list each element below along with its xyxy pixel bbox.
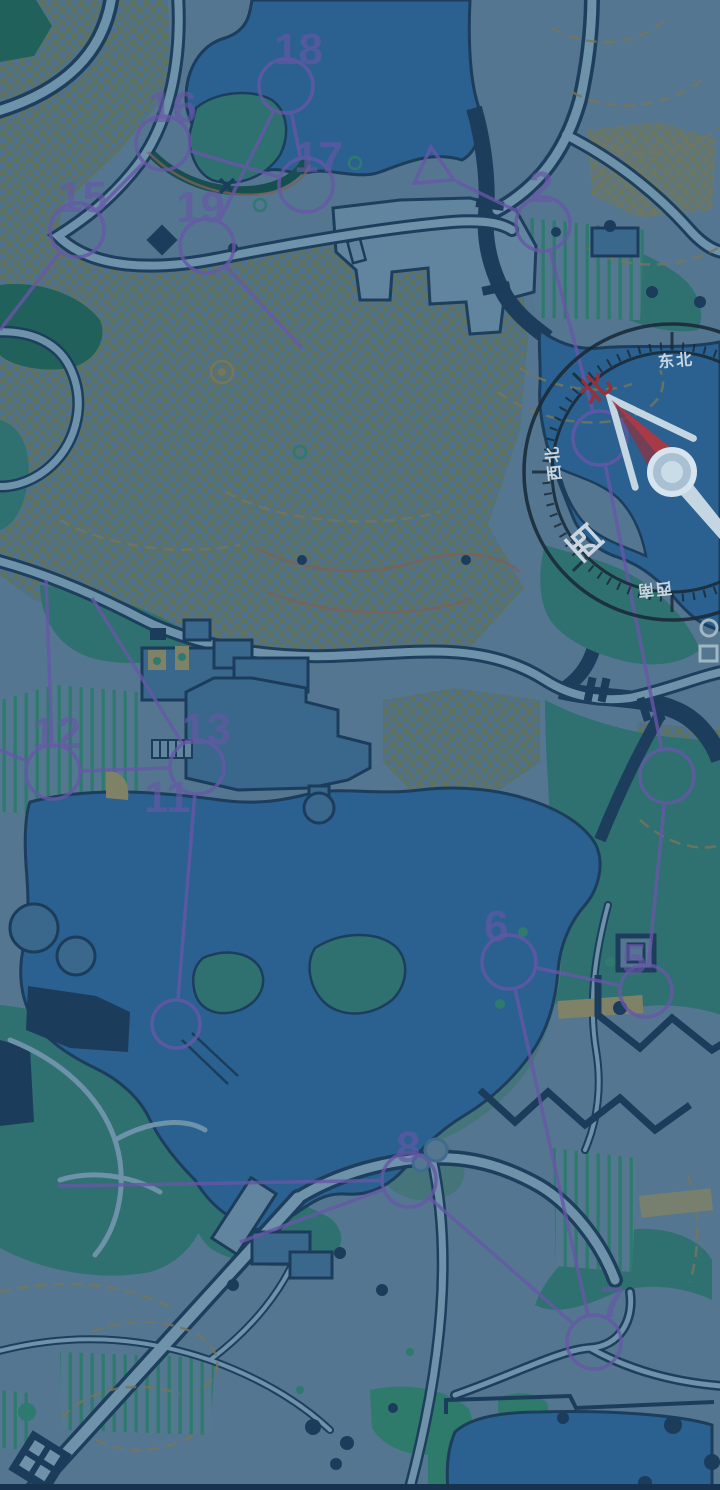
orienteering-map[interactable]: 151617181925678111213 北 东北 西北 西 西南 [0, 0, 720, 1490]
control-number-2: 2 [529, 163, 553, 212]
building [184, 620, 210, 640]
tank [57, 937, 95, 975]
building [290, 1252, 332, 1278]
control-number-19: 19 [176, 183, 225, 232]
tower [304, 793, 334, 823]
control-number-7: 7 [600, 1278, 624, 1327]
bottom-bar [0, 1484, 720, 1490]
control-number-5: 5 [622, 935, 646, 984]
control-number-13: 13 [182, 705, 231, 754]
control-number-18: 18 [274, 25, 323, 74]
control-number-6: 6 [484, 902, 508, 951]
control-number-17: 17 [294, 133, 343, 182]
control-number-16: 16 [148, 83, 197, 132]
building [592, 228, 638, 256]
tank [10, 904, 58, 952]
control-number-11: 11 [144, 773, 191, 822]
control-number-8: 8 [396, 1123, 420, 1172]
control-number-12: 12 [32, 709, 81, 758]
control-number-15: 15 [58, 173, 107, 222]
compass-label-northwest: 西北 [543, 444, 565, 482]
map-canvas[interactable]: 151617181925678111213 北 东北 西北 西 西南 [0, 0, 720, 1490]
